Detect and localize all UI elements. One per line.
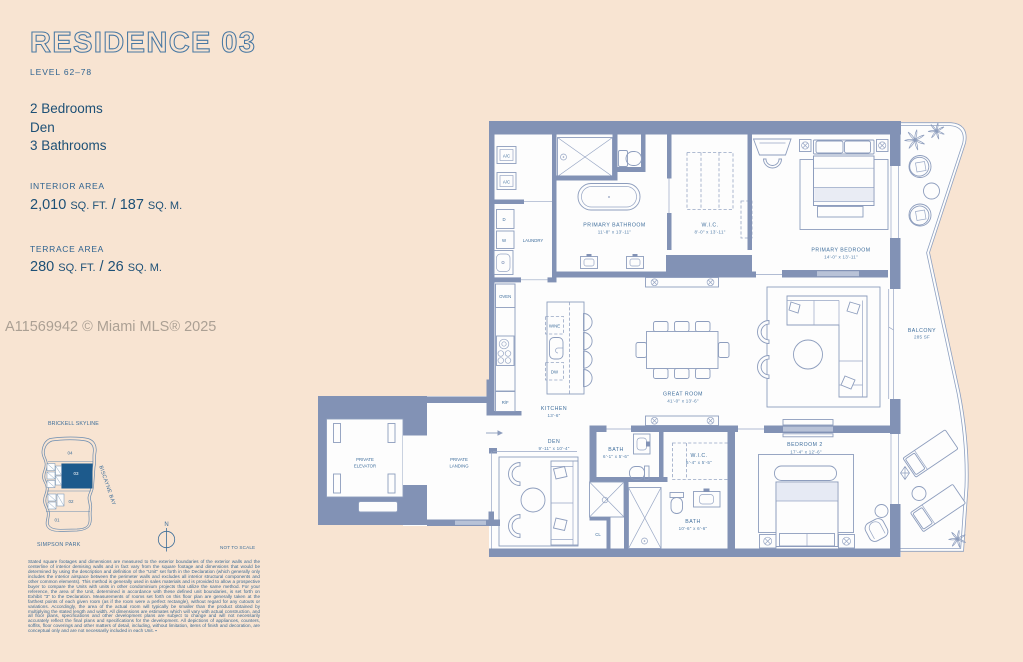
svg-text:R/F: R/F	[502, 400, 509, 405]
svg-text:PRIVATE: PRIVATE	[356, 457, 374, 462]
svg-text:8'-0" x 13'-11": 8'-0" x 13'-11"	[694, 230, 725, 235]
svg-text:14'-0" x 13'-11": 14'-0" x 13'-11"	[824, 255, 858, 260]
svg-text:9'-11" x 10'-4": 9'-11" x 10'-4"	[538, 446, 569, 451]
svg-text:A/C: A/C	[503, 180, 510, 185]
svg-text:WINE: WINE	[549, 324, 560, 329]
svg-text:ELEVATOR: ELEVATOR	[354, 464, 376, 469]
svg-text:17'-4" x 12'-6": 17'-4" x 12'-6"	[790, 450, 822, 455]
svg-text:OVEN: OVEN	[499, 294, 511, 299]
svg-text:11'-8" x 13'-11": 11'-8" x 13'-11"	[598, 230, 632, 235]
svg-text:KITCHEN: KITCHEN	[541, 406, 567, 412]
svg-text:A/C: A/C	[503, 154, 510, 159]
svg-text:GREAT ROOM: GREAT ROOM	[663, 392, 703, 398]
svg-text:03: 03	[73, 471, 79, 476]
svg-text:PRIVATE: PRIVATE	[450, 457, 468, 462]
svg-text:W.I.C.: W.I.C.	[701, 223, 718, 229]
svg-text:41'-0" x 13'-6": 41'-0" x 13'-6"	[667, 399, 699, 404]
svg-text:W.I.C.: W.I.C.	[690, 453, 707, 459]
svg-text:6'-4" x 5'-5": 6'-4" x 5'-5"	[686, 460, 712, 465]
svg-text:BEDROOM 2: BEDROOM 2	[787, 442, 823, 448]
svg-text:DW: DW	[551, 370, 559, 375]
svg-text:04: 04	[67, 451, 73, 456]
svg-text:01: 01	[54, 518, 60, 523]
svg-text:LANDING: LANDING	[449, 464, 469, 469]
svg-text:LAUNDRY: LAUNDRY	[523, 238, 544, 243]
svg-text:6'-1" x 5'-6": 6'-1" x 5'-6"	[603, 454, 629, 459]
svg-text:10'-6" x 6'-6": 10'-6" x 6'-6"	[679, 526, 708, 531]
svg-text:N: N	[164, 522, 168, 528]
svg-text:DEN: DEN	[548, 439, 560, 445]
svg-text:BATH: BATH	[685, 519, 700, 525]
svg-text:BATH: BATH	[608, 447, 623, 453]
svg-text:BALCONY: BALCONY	[908, 328, 936, 334]
svg-text:CL: CL	[595, 532, 601, 537]
svg-text:02: 02	[68, 499, 74, 504]
svg-text:PRIMARY BEDROOM: PRIMARY BEDROOM	[811, 248, 870, 254]
svg-text:D: D	[502, 217, 505, 222]
svg-text:13'-6": 13'-6"	[548, 413, 561, 418]
svg-text:285 SF: 285 SF	[914, 335, 930, 340]
svg-text:PRIMARY BATHROOM: PRIMARY BATHROOM	[583, 223, 645, 229]
